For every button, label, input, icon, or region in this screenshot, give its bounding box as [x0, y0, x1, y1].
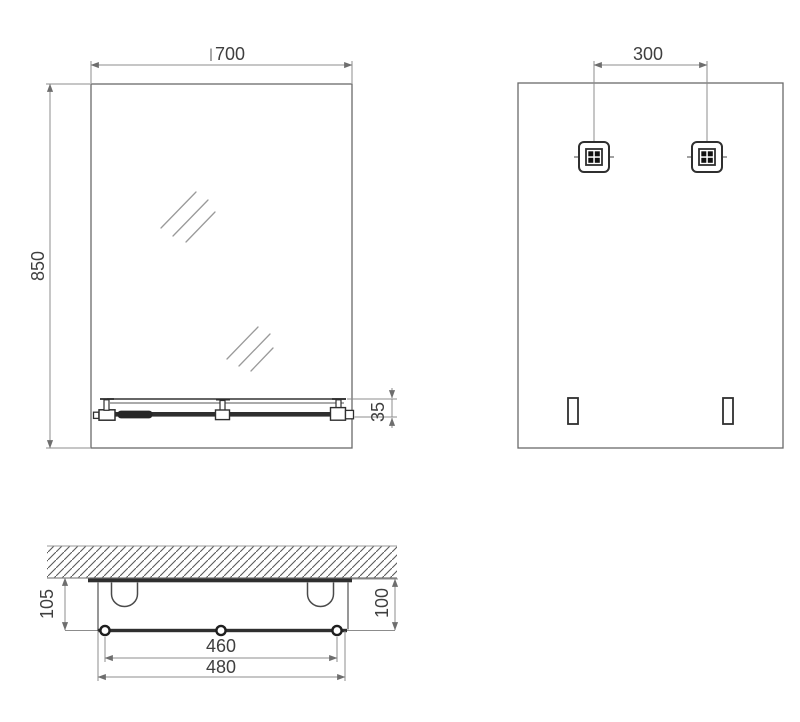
dim-shelf-profile: 35 — [347, 388, 397, 428]
screw-hole — [588, 151, 593, 156]
mirror-technical-drawing: 700 850 35 300 — [0, 0, 800, 722]
hanger-spacing-dimension-label: 300 — [633, 44, 663, 64]
back-view: 300 — [518, 44, 783, 448]
front-width-dimension-label: 700 — [215, 44, 245, 64]
rail-left-end-cap — [99, 410, 115, 420]
dim-front-width: 700 — [91, 44, 352, 83]
screw-hole — [701, 158, 706, 163]
mirror-glass-edge — [88, 579, 352, 583]
wall-section-hatch — [47, 546, 397, 578]
rail-fixing-left — [100, 626, 109, 635]
technical-drawing-page: 700 850 35 300 — [0, 0, 800, 722]
shelf-slot-right — [723, 398, 733, 424]
dim-wall-to-rail: 105 — [37, 578, 90, 630]
rail-left-end-nub — [94, 412, 100, 418]
screw-hole — [708, 158, 713, 163]
screw-hole — [701, 151, 706, 156]
wall-to-rail-dimension-label: 105 — [37, 589, 57, 619]
rail-right-end-nub — [346, 410, 354, 418]
shelf-profile-dimension-label: 35 — [368, 402, 388, 422]
dim-glass-to-rail: 100 — [352, 579, 398, 630]
screw-hole — [588, 158, 593, 163]
screw-hole — [595, 158, 600, 163]
bottom-view: 105 100 460 480 — [37, 546, 398, 681]
front-view: 700 850 35 — [28, 44, 397, 448]
rail-grip — [118, 411, 153, 419]
back-panel-outline — [518, 83, 783, 448]
shelf-clip-left — [112, 583, 138, 607]
rail-length-dimension-label: 480 — [206, 657, 236, 677]
front-height-dimension-label: 850 — [28, 251, 48, 281]
glass-to-rail-dimension-label: 100 — [372, 588, 392, 618]
fixings-span-dimension-label: 460 — [206, 636, 236, 656]
hanger-bracket-left — [574, 142, 614, 172]
shelf-clip-right — [308, 583, 334, 607]
screw-hole — [708, 151, 713, 156]
mirror-outline — [91, 84, 352, 448]
hanger-bracket-right — [687, 142, 727, 172]
rail-fixing-middle — [216, 626, 225, 635]
rail-fixing-right — [332, 626, 341, 635]
screw-hole — [595, 151, 600, 156]
dim-front-height: 850 — [28, 84, 90, 448]
shelf-slot-left — [568, 398, 578, 424]
